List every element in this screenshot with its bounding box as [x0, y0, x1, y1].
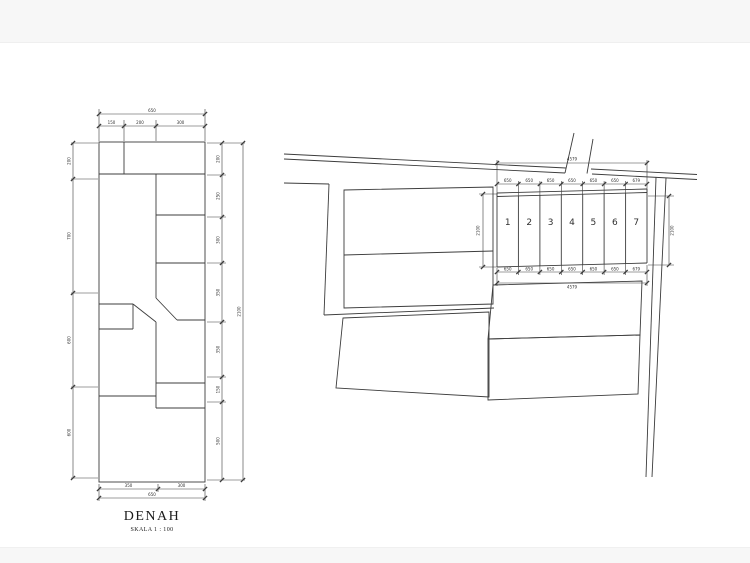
dim-label: 2100 [237, 306, 242, 317]
center-parcel [488, 281, 642, 339]
left-road [284, 183, 494, 315]
dim-label: 350 [216, 345, 221, 353]
dim-label: 650 [148, 492, 156, 497]
lot-number-5: 5 [591, 218, 597, 228]
dim-label: 650 [148, 108, 156, 113]
dim-label: 350 [216, 288, 221, 296]
dim-label: 250 [216, 192, 221, 200]
dim-label: 200 [216, 155, 221, 163]
cad-drawing: 650 150 200 300 200 700 600 600 200 250 … [0, 0, 750, 563]
site-plan: 1 2 3 4 5 6 7 4579 650 650 650 650 650 6… [284, 133, 697, 477]
lot-numbers: 1 2 3 4 5 6 7 [505, 218, 639, 228]
dim-label: 500 [216, 437, 221, 445]
dim-label: 650 [504, 267, 512, 272]
dim-label: 600 [67, 428, 72, 436]
dim-label: 650 [547, 178, 555, 183]
lot-number-3: 3 [548, 218, 554, 228]
dim-label: 200 [67, 157, 72, 165]
lot-number-6: 6 [612, 218, 618, 228]
floor-plan-dimension-labels: 650 150 200 300 200 700 600 600 200 250 … [67, 108, 242, 497]
dim-label: 150 [216, 385, 221, 393]
floor-plan-scale-label: SKALA 1 : 100 [130, 527, 173, 533]
dim-label: 650 [525, 178, 533, 183]
lot-number-2: 2 [526, 218, 532, 228]
dim-label: 650 [590, 267, 598, 272]
lot-number-1: 1 [505, 218, 511, 228]
dim-label: 650 [525, 267, 533, 272]
lower-center-parcel [488, 335, 640, 400]
floor-plan-title: DENAH [124, 509, 181, 524]
dim-label: 4579 [567, 285, 578, 290]
dim-label: 650 [547, 267, 555, 272]
dim-label: 300 [177, 120, 185, 125]
lower-left-parcel [336, 312, 489, 397]
dim-label: 650 [611, 267, 619, 272]
branch-road [565, 133, 593, 174]
dim-label: 2100 [476, 225, 481, 236]
dim-label: 200 [136, 120, 144, 125]
dim-label: 150 [108, 120, 116, 125]
dim-label: 4579 [567, 157, 578, 162]
dim-label: 650 [504, 178, 512, 183]
dim-label: 300 [216, 236, 221, 244]
lot-block [497, 189, 647, 267]
dim-label: 700 [67, 232, 72, 240]
floor-plan-walls [99, 142, 205, 482]
dim-label: 650 [590, 178, 598, 183]
dim-label: 600 [67, 336, 72, 344]
dim-label: 650 [611, 178, 619, 183]
lot-number-7: 7 [633, 218, 639, 228]
dim-label: 350 [125, 483, 133, 488]
upper-left-parcel [344, 187, 493, 308]
dim-label: 679 [632, 267, 640, 272]
dim-label: 650 [568, 178, 576, 183]
lot-number-4: 4 [569, 218, 575, 228]
dim-label: 2100 [670, 225, 675, 236]
right-road [646, 178, 666, 478]
dim-label: 300 [178, 483, 186, 488]
floor-plan: 650 150 200 300 200 700 600 600 200 250 … [67, 108, 246, 533]
dim-label: 679 [632, 178, 640, 183]
dim-label: 650 [568, 267, 576, 272]
top-road [284, 154, 697, 180]
